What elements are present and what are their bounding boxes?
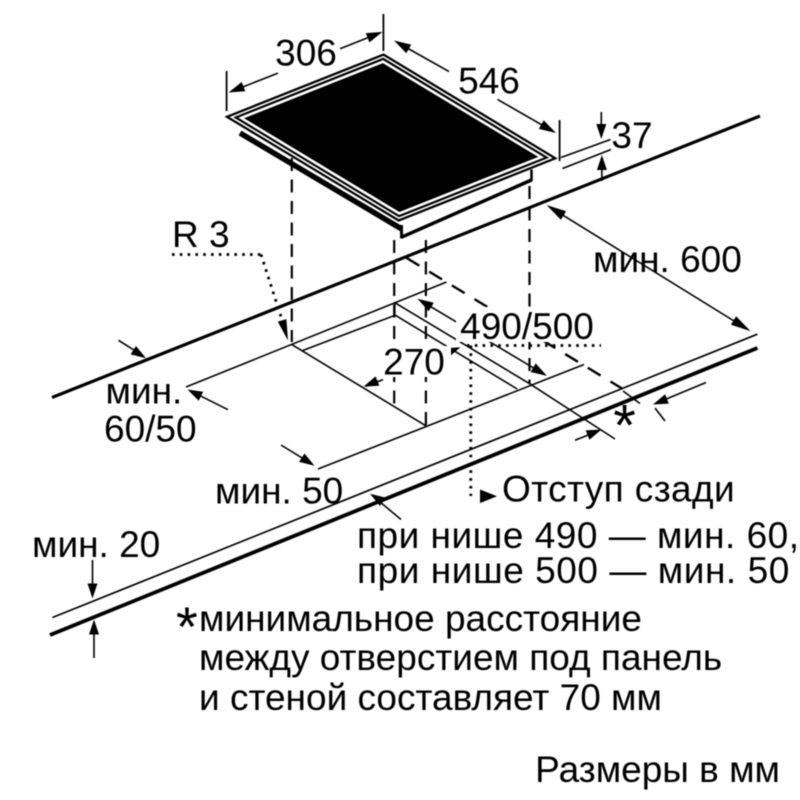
svg-text:546: 546 (458, 61, 520, 102)
svg-text:мин. 50: мин. 50 (215, 471, 343, 512)
svg-text:мин. 600: мин. 600 (593, 239, 742, 280)
svg-text:R 3: R 3 (172, 214, 230, 255)
svg-text:*: * (176, 595, 198, 658)
svg-text:между отверстием под панель: между отверстием под панель (199, 637, 722, 678)
svg-text:Размеры в мм: Размеры в мм (535, 749, 780, 790)
svg-text:*: * (613, 394, 636, 459)
svg-text:270: 270 (383, 342, 445, 383)
svg-text:мин. 20: мин. 20 (32, 524, 160, 565)
svg-text:минимальное расстояние: минимальное расстояние (199, 598, 642, 639)
svg-text:мин.: мин. (106, 371, 183, 412)
svg-text:Отступ сзади: Отступ сзади (502, 469, 735, 510)
svg-text:490/500: 490/500 (460, 306, 594, 347)
svg-text:и стеной составляет 70 мм: и стеной составляет 70 мм (199, 677, 662, 718)
svg-text:37: 37 (611, 115, 652, 156)
svg-text:при нише 500 — мин. 50: при нише 500 — мин. 50 (357, 550, 790, 591)
svg-text:60/50: 60/50 (104, 409, 197, 450)
svg-text:306: 306 (275, 33, 337, 74)
